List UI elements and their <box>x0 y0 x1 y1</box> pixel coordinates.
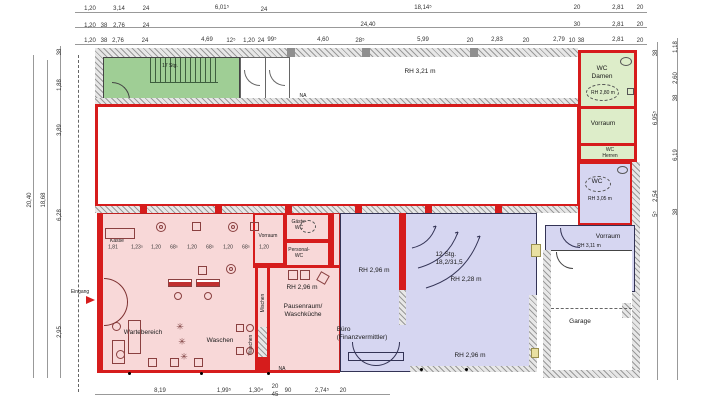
floor-plan-sheet: 17 Stg. RH 3,21 m NA Vorraum Gäste- WC P… <box>0 0 710 400</box>
dim-label: 1,20 <box>84 6 96 12</box>
dim-label: 24,40 <box>360 22 375 28</box>
dim-label: 2,54 <box>653 190 659 202</box>
wc-fixture <box>620 57 632 66</box>
wall-inner <box>253 265 340 268</box>
dim-label: 45 <box>272 392 279 398</box>
dim-label: 1,20 <box>243 38 255 44</box>
wash-unit <box>246 324 254 332</box>
dim-label: 28⁵ <box>355 38 364 44</box>
room-personal-wc <box>285 241 330 267</box>
room-garage <box>551 250 632 370</box>
entrance-step <box>348 352 404 361</box>
wall-wc-divider <box>578 143 637 146</box>
dim-label: 20 <box>637 38 644 44</box>
dim-label: 2,83 <box>491 37 503 43</box>
dim-label: 12⁵ <box>226 38 235 44</box>
dim-label: 2,79 <box>553 37 565 43</box>
dim-label: 1,23⁵ <box>131 246 143 251</box>
dim-label: 6,95⁵ <box>653 111 659 125</box>
washing-machine <box>288 270 298 280</box>
dim-label: 68⁵ <box>170 246 178 251</box>
dim-label: 20,40 <box>27 192 33 207</box>
sink <box>627 88 634 95</box>
dim-label: 24 <box>143 6 150 12</box>
dim-label: 24 <box>261 7 268 13</box>
curved-stair <box>402 216 502 301</box>
plant-icon: ✳ <box>178 338 186 347</box>
dim-line <box>95 394 390 395</box>
wall-salon-left <box>97 213 103 373</box>
wall-hall2-bottom <box>95 206 578 213</box>
wall-pillar <box>470 48 478 57</box>
wall-inner <box>330 213 334 267</box>
dim-label: 4,69 <box>201 37 213 43</box>
entrance-arrow-icon <box>86 296 95 304</box>
dim-label: 2,60 <box>673 72 679 84</box>
wall-garage-pillar <box>622 303 631 318</box>
dim-line <box>47 60 48 378</box>
dim-label: 24 <box>258 38 265 44</box>
wall-pillar <box>287 48 295 57</box>
dim-label: 24 <box>142 38 149 44</box>
section-line <box>78 55 79 392</box>
column-dot <box>267 372 270 375</box>
dim-label: 38 <box>57 49 63 56</box>
dim-label: 1,30⁴ <box>249 388 263 394</box>
dim-label: 2,76 <box>112 38 124 44</box>
dim-label: 3,14 <box>113 6 125 12</box>
wash-unit <box>236 347 244 355</box>
dim-label: 8,19 <box>154 388 166 394</box>
dim-label: 1,20 <box>84 23 96 29</box>
dim-label: 18,68 <box>41 192 47 207</box>
column-dot <box>465 368 468 371</box>
dim-label: 1,20 <box>84 38 96 44</box>
salon-chair <box>198 266 207 275</box>
wall-pillar-red <box>425 206 432 213</box>
dim-label: 10 <box>569 38 576 44</box>
dim-label: 20 <box>574 5 581 11</box>
dim-label: 20 <box>523 38 530 44</box>
dim-label: 20 <box>637 22 644 28</box>
dim-label: 1,88 <box>57 79 63 91</box>
dim-line <box>75 44 647 45</box>
eingang-label: Eingang <box>71 289 89 295</box>
wall-wc-divider <box>578 106 637 109</box>
salon-chair <box>231 225 235 229</box>
wall-salon-bottom <box>97 370 340 373</box>
styling-station <box>196 279 220 287</box>
dim-label: 99⁵ <box>267 37 276 43</box>
dim-label: 20 <box>272 384 279 390</box>
wall-pillar-red <box>215 206 222 213</box>
wall-pillar-red <box>140 206 147 213</box>
dim-label: 2,95 <box>57 326 63 338</box>
dim-label: 6,28 <box>57 209 63 221</box>
wall-pillar-red <box>285 206 292 213</box>
dim-label: 68⁵ <box>206 246 214 251</box>
dim-label: 38 <box>673 95 679 102</box>
plant-icon: ✳ <box>176 323 184 332</box>
hall-height-label: RH 3,21 m <box>404 68 435 76</box>
dim-label: 2,74⁵ <box>315 388 329 394</box>
waiting-chair <box>116 350 125 359</box>
wall-pillar-red <box>355 206 362 213</box>
dim-line <box>75 12 647 13</box>
dim-label: 1,81 <box>108 246 118 251</box>
plant-icon: ✳ <box>180 353 188 362</box>
side-table <box>194 358 203 367</box>
dim-label: 1,20 <box>223 246 233 251</box>
wash-unit <box>246 347 254 355</box>
dim-label: 20 <box>340 388 347 394</box>
styling-station <box>168 279 192 287</box>
accent-yellow-block <box>531 348 539 358</box>
dim-label: 6,01⁵ <box>215 5 229 11</box>
column-dot <box>128 372 131 375</box>
dim-label: 38 <box>101 38 108 44</box>
dim-label: 2,81 <box>612 5 624 11</box>
room-vorraum-mid <box>253 213 285 265</box>
dim-label: 1,18 <box>673 41 679 53</box>
salon-chair <box>250 222 259 231</box>
wall-office-bottom <box>410 366 537 372</box>
dim-label: 2,76 <box>113 23 125 29</box>
side-table <box>148 358 157 367</box>
dim-label: 1,20 <box>259 246 269 251</box>
dim-label: 1,20 <box>151 246 161 251</box>
dim-label: 5⁵ <box>653 211 659 217</box>
dim-label: 90 <box>285 388 292 394</box>
wall-divider <box>265 57 266 103</box>
dim-label: 6,19 <box>673 149 679 161</box>
dim-label: 3,89 <box>57 124 63 136</box>
wall-inner <box>255 265 258 370</box>
dim-label: 20 <box>467 38 474 44</box>
dim-label: 4,60 <box>317 37 329 43</box>
wall-top <box>95 48 578 57</box>
side-table <box>170 358 179 367</box>
salon-chair <box>174 292 182 300</box>
wc-fixture <box>617 166 628 174</box>
dim-label: 38 <box>673 209 679 216</box>
dim-label: 1,99⁵ <box>217 388 231 394</box>
wc-fixture <box>300 220 316 233</box>
salon-chair <box>192 222 201 231</box>
wash-unit <box>236 324 244 332</box>
column-dot <box>420 368 423 371</box>
dim-label: 18,14⁵ <box>414 5 432 11</box>
dim-label: 68⁵ <box>242 246 250 251</box>
salon-chair <box>204 292 212 300</box>
height-marker <box>585 176 611 192</box>
height-marker <box>586 84 619 101</box>
dim-label: 38 <box>101 23 108 29</box>
waiting-bench <box>128 320 141 354</box>
room-main-hall <box>95 104 580 207</box>
dim-label: 2,81 <box>612 37 624 43</box>
dim-label: 24 <box>143 23 150 29</box>
wall-office-right <box>529 295 537 372</box>
dim-label: 2,81 <box>612 22 624 28</box>
wall-garage-left <box>543 250 551 378</box>
garage-dashed-line <box>551 308 632 309</box>
dim-label: 5,99 <box>417 37 429 43</box>
column-dot <box>200 372 203 375</box>
accent-yellow-block <box>531 244 541 257</box>
stair-treads <box>150 58 218 83</box>
wall-pillar-red <box>495 206 502 213</box>
wall-inner <box>267 265 270 370</box>
dim-line <box>33 55 34 378</box>
wall-pillar <box>362 48 370 57</box>
dim-label: 38 <box>578 38 585 44</box>
wall-garage-bottom <box>543 370 640 378</box>
salon-chair <box>229 267 233 271</box>
dim-label: 38 <box>653 50 659 57</box>
dim-label: 20 <box>637 5 644 11</box>
dim-label: 1,20 <box>187 246 197 251</box>
kasse-counter <box>105 228 135 239</box>
salon-chair <box>159 225 163 229</box>
dim-label: 30 <box>574 22 581 28</box>
washing-machine <box>300 270 310 280</box>
